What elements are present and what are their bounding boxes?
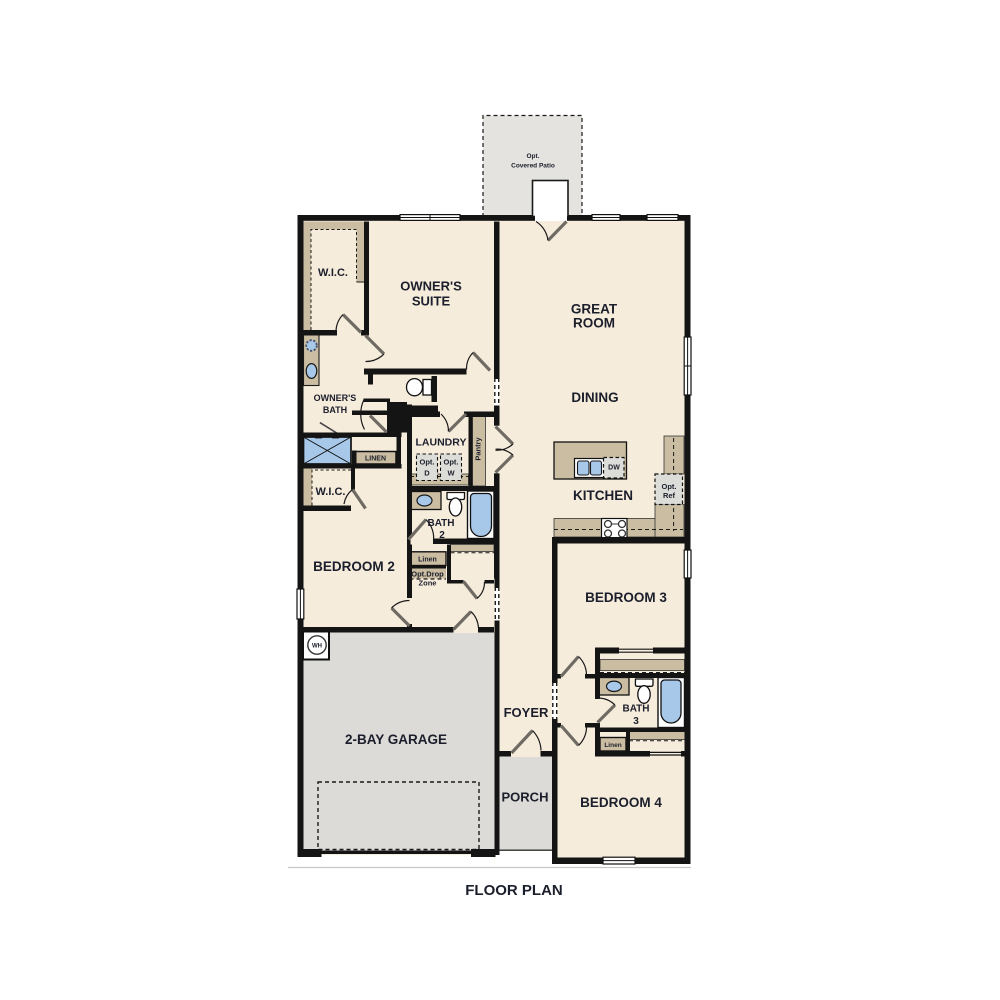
svg-text:W.I.C.: W.I.C. — [316, 486, 346, 498]
svg-text:SUITE: SUITE — [412, 294, 451, 309]
svg-text:DW: DW — [608, 465, 620, 472]
svg-text:BEDROOM 2: BEDROOM 2 — [313, 559, 395, 574]
svg-text:BATH: BATH — [622, 704, 649, 715]
svg-text:WH: WH — [312, 644, 322, 650]
svg-text:LAUNDRY: LAUNDRY — [416, 437, 467, 449]
svg-text:ROOM: ROOM — [573, 316, 615, 331]
svg-text:BATH: BATH — [427, 518, 454, 529]
svg-text:Opt.: Opt. — [420, 458, 435, 467]
svg-text:GREAT: GREAT — [571, 302, 618, 317]
svg-text:Opt.Drop: Opt.Drop — [411, 570, 444, 579]
svg-text:BEDROOM 3: BEDROOM 3 — [585, 590, 667, 605]
svg-text:OWNER'S: OWNER'S — [400, 279, 462, 294]
svg-text:Linen: Linen — [418, 557, 437, 564]
svg-text:2: 2 — [439, 530, 445, 541]
svg-text:DINING: DINING — [571, 390, 618, 405]
svg-text:W.I.C.: W.I.C. — [318, 267, 348, 279]
svg-text:2-BAY GARAGE: 2-BAY GARAGE — [345, 732, 447, 747]
svg-text:OWNER'S: OWNER'S — [314, 393, 357, 403]
svg-text:Ref: Ref — [663, 491, 676, 500]
svg-text:Covered Patio: Covered Patio — [511, 163, 555, 170]
svg-text:W: W — [447, 469, 455, 478]
svg-text:Opt.: Opt. — [662, 482, 677, 491]
svg-text:Opt.: Opt. — [527, 153, 540, 160]
svg-text:PORCH: PORCH — [502, 790, 549, 805]
svg-text:BEDROOM 4: BEDROOM 4 — [580, 795, 662, 810]
svg-text:KITCHEN: KITCHEN — [573, 488, 633, 503]
svg-text:FLOOR PLAN: FLOOR PLAN — [465, 882, 563, 899]
svg-text:LINEN: LINEN — [365, 456, 386, 463]
svg-text:3: 3 — [633, 716, 639, 727]
svg-text:Zone: Zone — [419, 579, 437, 588]
svg-text:FOYER: FOYER — [504, 705, 549, 720]
svg-text:D: D — [424, 469, 430, 478]
svg-text:Pantry: Pantry — [474, 437, 483, 461]
svg-text:BATH: BATH — [323, 405, 347, 415]
svg-text:Opt.: Opt. — [444, 458, 459, 467]
svg-text:Linen: Linen — [604, 742, 621, 749]
